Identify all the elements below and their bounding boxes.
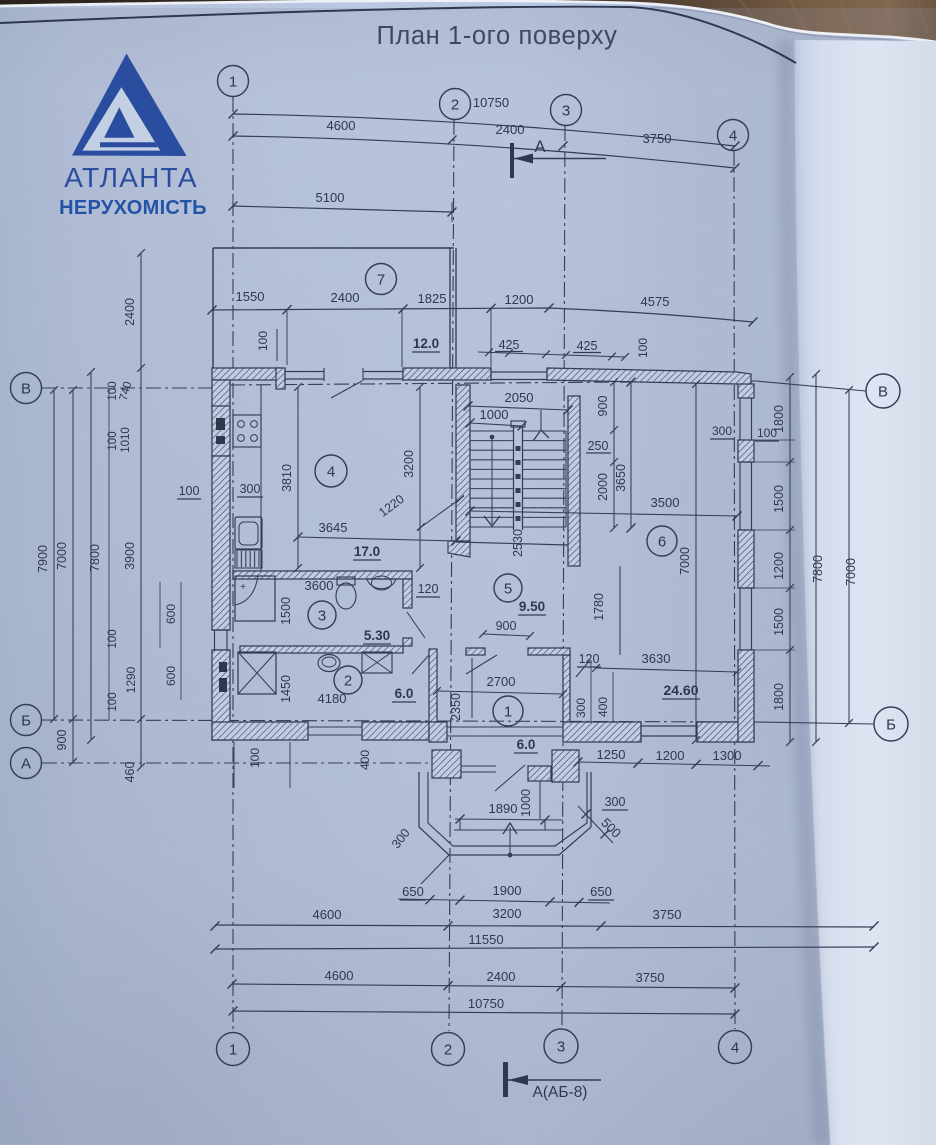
svg-text:4180: 4180 (318, 691, 347, 706)
svg-text:1200: 1200 (772, 552, 786, 580)
svg-text:2530: 2530 (511, 529, 525, 557)
svg-text:600: 600 (164, 666, 178, 686)
svg-text:План 1-ого поверху: План 1-ого поверху (376, 22, 617, 50)
svg-text:17.0: 17.0 (354, 544, 380, 559)
svg-text:2400: 2400 (496, 122, 525, 137)
svg-text:5.30: 5.30 (364, 628, 390, 643)
svg-text:Б: Б (21, 712, 31, 729)
svg-text:24.60: 24.60 (663, 682, 698, 698)
svg-text:6.0: 6.0 (517, 737, 536, 752)
svg-text:425: 425 (499, 338, 520, 352)
svg-text:1800: 1800 (772, 683, 786, 711)
svg-text:3750: 3750 (653, 907, 682, 922)
svg-text:9.50: 9.50 (519, 599, 545, 614)
svg-text:250: 250 (588, 439, 609, 453)
svg-text:300: 300 (605, 795, 626, 809)
svg-text:7800: 7800 (88, 544, 102, 572)
svg-text:12.0: 12.0 (413, 336, 439, 351)
svg-text:100: 100 (636, 338, 650, 358)
svg-text:6.0: 6.0 (395, 686, 414, 701)
svg-text:1: 1 (229, 73, 237, 90)
svg-text:300: 300 (712, 424, 732, 438)
svg-text:3: 3 (318, 607, 326, 624)
svg-text:НЕРУХОМІСТЬ: НЕРУХОМІСТЬ (59, 197, 207, 219)
svg-text:1500: 1500 (772, 608, 786, 636)
svg-text:11550: 11550 (468, 932, 503, 947)
svg-text:100: 100 (256, 331, 270, 351)
svg-text:900: 900 (596, 396, 610, 417)
svg-text:+: + (240, 582, 246, 593)
svg-text:2700: 2700 (487, 674, 516, 689)
svg-text:1500: 1500 (279, 597, 293, 625)
svg-text:4600: 4600 (325, 968, 354, 983)
svg-text:В: В (21, 380, 31, 397)
svg-text:3810: 3810 (280, 464, 294, 492)
svg-text:2350: 2350 (449, 693, 463, 721)
svg-text:120: 120 (418, 582, 439, 596)
svg-text:1200: 1200 (505, 292, 534, 307)
svg-text:120: 120 (579, 652, 600, 666)
svg-text:1550: 1550 (236, 289, 265, 304)
svg-text:460: 460 (123, 762, 137, 783)
svg-text:650: 650 (590, 884, 612, 899)
svg-text:2400: 2400 (123, 298, 137, 326)
svg-text:300: 300 (240, 482, 261, 496)
svg-text:7: 7 (377, 271, 385, 288)
svg-text:1200: 1200 (656, 748, 685, 763)
svg-text:1825: 1825 (418, 291, 447, 306)
svg-text:3900: 3900 (123, 542, 137, 570)
svg-text:6: 6 (658, 533, 666, 550)
svg-text:600: 600 (164, 604, 178, 624)
svg-text:650: 650 (402, 884, 424, 899)
svg-text:3200: 3200 (493, 906, 522, 921)
svg-text:1010: 1010 (120, 427, 132, 453)
svg-text:4575: 4575 (641, 294, 670, 309)
svg-text:3750: 3750 (636, 970, 665, 985)
svg-text:1500: 1500 (772, 485, 786, 513)
svg-text:А: А (21, 755, 31, 772)
svg-text:АТЛАНТА: АТЛАНТА (64, 162, 198, 193)
svg-text:900: 900 (496, 619, 517, 633)
svg-text:1780: 1780 (592, 593, 606, 621)
svg-text:3750: 3750 (643, 131, 672, 146)
svg-text:7000: 7000 (678, 547, 692, 575)
svg-text:100: 100 (179, 484, 200, 498)
svg-text:1290: 1290 (124, 666, 138, 693)
svg-text:1900: 1900 (493, 883, 522, 898)
svg-text:5100: 5100 (316, 190, 345, 205)
svg-text:4600: 4600 (313, 907, 342, 922)
svg-text:3600: 3600 (305, 578, 334, 593)
svg-text:7800: 7800 (811, 555, 825, 583)
svg-text:4600: 4600 (327, 118, 356, 133)
svg-text:А: А (534, 138, 545, 156)
svg-text:100: 100 (248, 748, 262, 768)
svg-text:4: 4 (731, 1039, 739, 1056)
svg-text:1000: 1000 (480, 407, 509, 422)
svg-text:1450: 1450 (279, 675, 293, 703)
svg-text:2: 2 (444, 1041, 452, 1058)
svg-text:5: 5 (504, 580, 512, 597)
svg-text:1: 1 (229, 1041, 237, 1058)
svg-text:3200: 3200 (402, 450, 416, 478)
svg-text:3: 3 (562, 102, 570, 119)
svg-text:300: 300 (574, 698, 588, 718)
svg-text:1890: 1890 (489, 801, 518, 816)
svg-text:3500: 3500 (651, 495, 680, 510)
svg-text:100: 100 (107, 692, 119, 711)
svg-text:3: 3 (557, 1038, 565, 1055)
svg-text:В: В (878, 383, 888, 400)
svg-text:4: 4 (327, 463, 335, 480)
svg-text:2: 2 (344, 672, 352, 689)
svg-text:7000: 7000 (844, 558, 858, 586)
svg-text:3645: 3645 (319, 520, 348, 535)
svg-text:4: 4 (729, 127, 737, 144)
svg-text:1250: 1250 (597, 747, 626, 762)
svg-text:А(АБ-8): А(АБ-8) (533, 1084, 588, 1101)
svg-text:2400: 2400 (331, 290, 360, 305)
svg-text:1800: 1800 (772, 405, 786, 433)
svg-text:2400: 2400 (487, 969, 516, 984)
svg-text:1000: 1000 (519, 789, 533, 817)
svg-text:3650: 3650 (614, 464, 628, 492)
svg-text:2: 2 (451, 96, 459, 113)
svg-text:3630: 3630 (642, 651, 671, 666)
svg-text:100: 100 (107, 431, 119, 450)
svg-text:400: 400 (358, 750, 372, 770)
svg-text:10750: 10750 (468, 996, 504, 1011)
svg-text:1300: 1300 (713, 748, 742, 763)
svg-text:10750: 10750 (473, 95, 509, 110)
svg-text:Б: Б (886, 716, 896, 733)
svg-text:1: 1 (504, 703, 512, 720)
svg-text:900: 900 (55, 730, 69, 751)
svg-text:100: 100 (107, 629, 119, 648)
svg-text:2000: 2000 (596, 473, 610, 501)
svg-text:2050: 2050 (505, 390, 534, 405)
svg-text:425: 425 (577, 339, 598, 353)
svg-text:7900: 7900 (36, 545, 50, 573)
svg-text:400: 400 (596, 697, 610, 717)
svg-text:7000: 7000 (55, 542, 69, 570)
